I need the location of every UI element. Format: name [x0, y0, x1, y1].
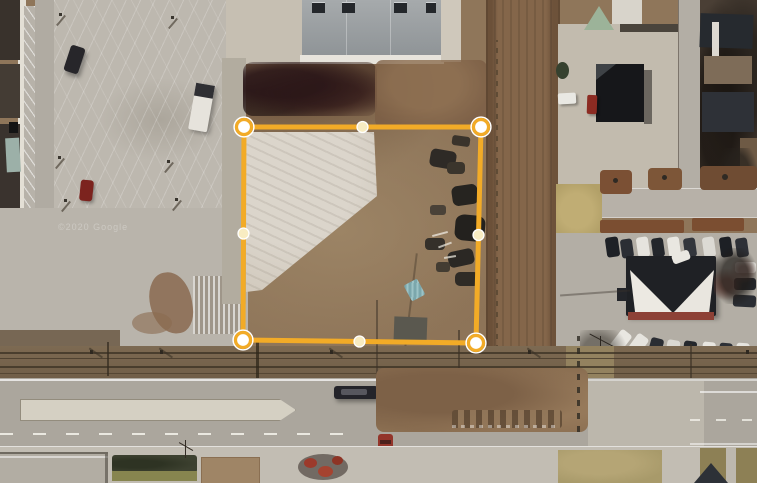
rail-track [0, 358, 757, 359]
light-pole [64, 199, 67, 202]
lane-dashes [690, 419, 757, 421]
light-pole [58, 156, 61, 159]
light-pole [59, 13, 62, 16]
midpoint-handle[interactable] [357, 122, 368, 133]
car-roof [341, 389, 367, 395]
branch [185, 440, 186, 458]
rail-track [0, 352, 757, 354]
roof-edge [0, 456, 108, 458]
pole-shadow [107, 342, 109, 376]
concrete-strip [226, 0, 306, 64]
rust-dirt [375, 60, 487, 128]
tree [613, 178, 618, 183]
debris [447, 247, 476, 268]
debris [430, 205, 446, 215]
dirt-patch [132, 312, 172, 334]
light-pole [175, 198, 178, 201]
building-roof [0, 452, 108, 483]
mulch-island [700, 166, 757, 190]
house-roof [699, 13, 753, 49]
hvac-unit [342, 2, 355, 13]
building-roof [620, 24, 678, 32]
houses-right-edge [700, 0, 757, 170]
warehouse-roof [302, 0, 442, 58]
ground-marking [432, 231, 448, 237]
lane-dashes [0, 433, 345, 435]
concrete-strip [441, 0, 461, 62]
debris [451, 135, 470, 147]
car [605, 236, 621, 258]
blue-tarp [404, 279, 426, 302]
roof-shadow [105, 454, 108, 483]
car [334, 386, 378, 399]
building-roof [0, 0, 20, 60]
mulch-island [600, 170, 632, 194]
bare-tree [176, 438, 196, 460]
concrete-pad [244, 127, 422, 313]
red-tree [296, 452, 352, 483]
mulch-island [648, 168, 682, 190]
tree [662, 175, 667, 180]
intersection-apron [588, 381, 704, 450]
car-window [380, 440, 391, 444]
car [636, 236, 651, 257]
car [79, 179, 94, 201]
light-pole [171, 16, 174, 19]
house-roof-green [584, 6, 614, 30]
hvac-unit [426, 2, 436, 13]
roof-seam [390, 0, 391, 58]
dumpster [9, 122, 18, 133]
red-foliage [318, 466, 333, 477]
building-roof [5, 138, 21, 173]
roof-wedge [596, 64, 616, 80]
tree [714, 248, 756, 304]
gravel-pad [394, 316, 428, 340]
dirt-square [201, 457, 260, 483]
mulch-strip [692, 218, 744, 231]
car [651, 237, 666, 257]
tree [722, 174, 728, 180]
debris [447, 162, 465, 174]
hvac-unit [394, 2, 407, 13]
house-roof [704, 56, 752, 84]
red-foliage [304, 458, 317, 468]
red-foliage [332, 456, 343, 465]
rubble-row [452, 425, 560, 428]
side-street [678, 0, 702, 192]
fence-line [496, 40, 498, 350]
road-line [690, 443, 757, 445]
debris-field [243, 62, 377, 116]
car [587, 95, 598, 114]
house-roof [702, 92, 754, 132]
grass-patch [556, 184, 602, 238]
rail-track [0, 366, 757, 368]
trailer [712, 22, 719, 58]
mulch-strip [600, 220, 684, 233]
walkway [726, 448, 736, 483]
car [558, 93, 577, 105]
imagery-watermark: ©2020 Google [58, 222, 128, 232]
median-island [20, 399, 296, 421]
hvac-unit [312, 2, 325, 13]
building-facade-red [628, 312, 714, 320]
grass-patch [558, 450, 662, 483]
utility-pole [746, 350, 749, 354]
building-shadow [644, 70, 652, 124]
black-building [596, 64, 644, 122]
road-line [700, 391, 757, 393]
grass-strip [112, 471, 197, 481]
left-street [35, 0, 56, 232]
light-pole [167, 160, 170, 163]
building-roof [0, 64, 20, 118]
restaurant-building [626, 256, 716, 320]
debris [455, 272, 479, 286]
debris [454, 214, 486, 243]
debris [436, 262, 450, 272]
debris [451, 183, 480, 206]
truck-cab [194, 83, 215, 99]
satellite-map-canvas[interactable]: ©2020 Google [0, 0, 757, 483]
building-roof [612, 0, 642, 24]
bush [556, 62, 569, 79]
left-buildings [0, 0, 26, 214]
powerline-shadow [577, 336, 580, 432]
